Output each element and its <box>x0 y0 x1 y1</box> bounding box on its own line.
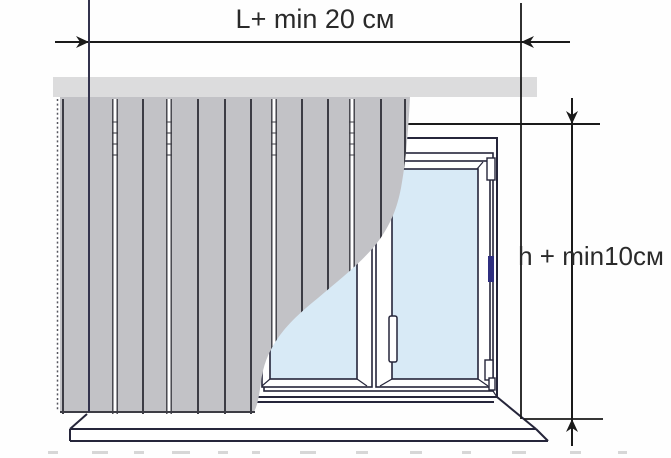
height-dimension <box>524 98 603 446</box>
hinge-bottom-tab-icon <box>489 378 495 390</box>
cornice-rail <box>53 77 537 97</box>
glass-pane-right <box>392 169 478 379</box>
cropped-caption-remnant <box>48 451 627 454</box>
diagram-canvas <box>0 0 671 458</box>
blinds-measurement-diagram: L+ min 20 см h + min10см <box>0 0 671 458</box>
height-dimension-label: h + min10см <box>509 243 671 269</box>
hinge-bottom-icon <box>485 360 493 380</box>
window-handle-accent-icon <box>488 256 494 282</box>
window-handle-icon <box>389 316 397 362</box>
width-dimension-label: L+ min 20 см <box>203 6 427 33</box>
hinge-top-icon <box>487 158 495 180</box>
